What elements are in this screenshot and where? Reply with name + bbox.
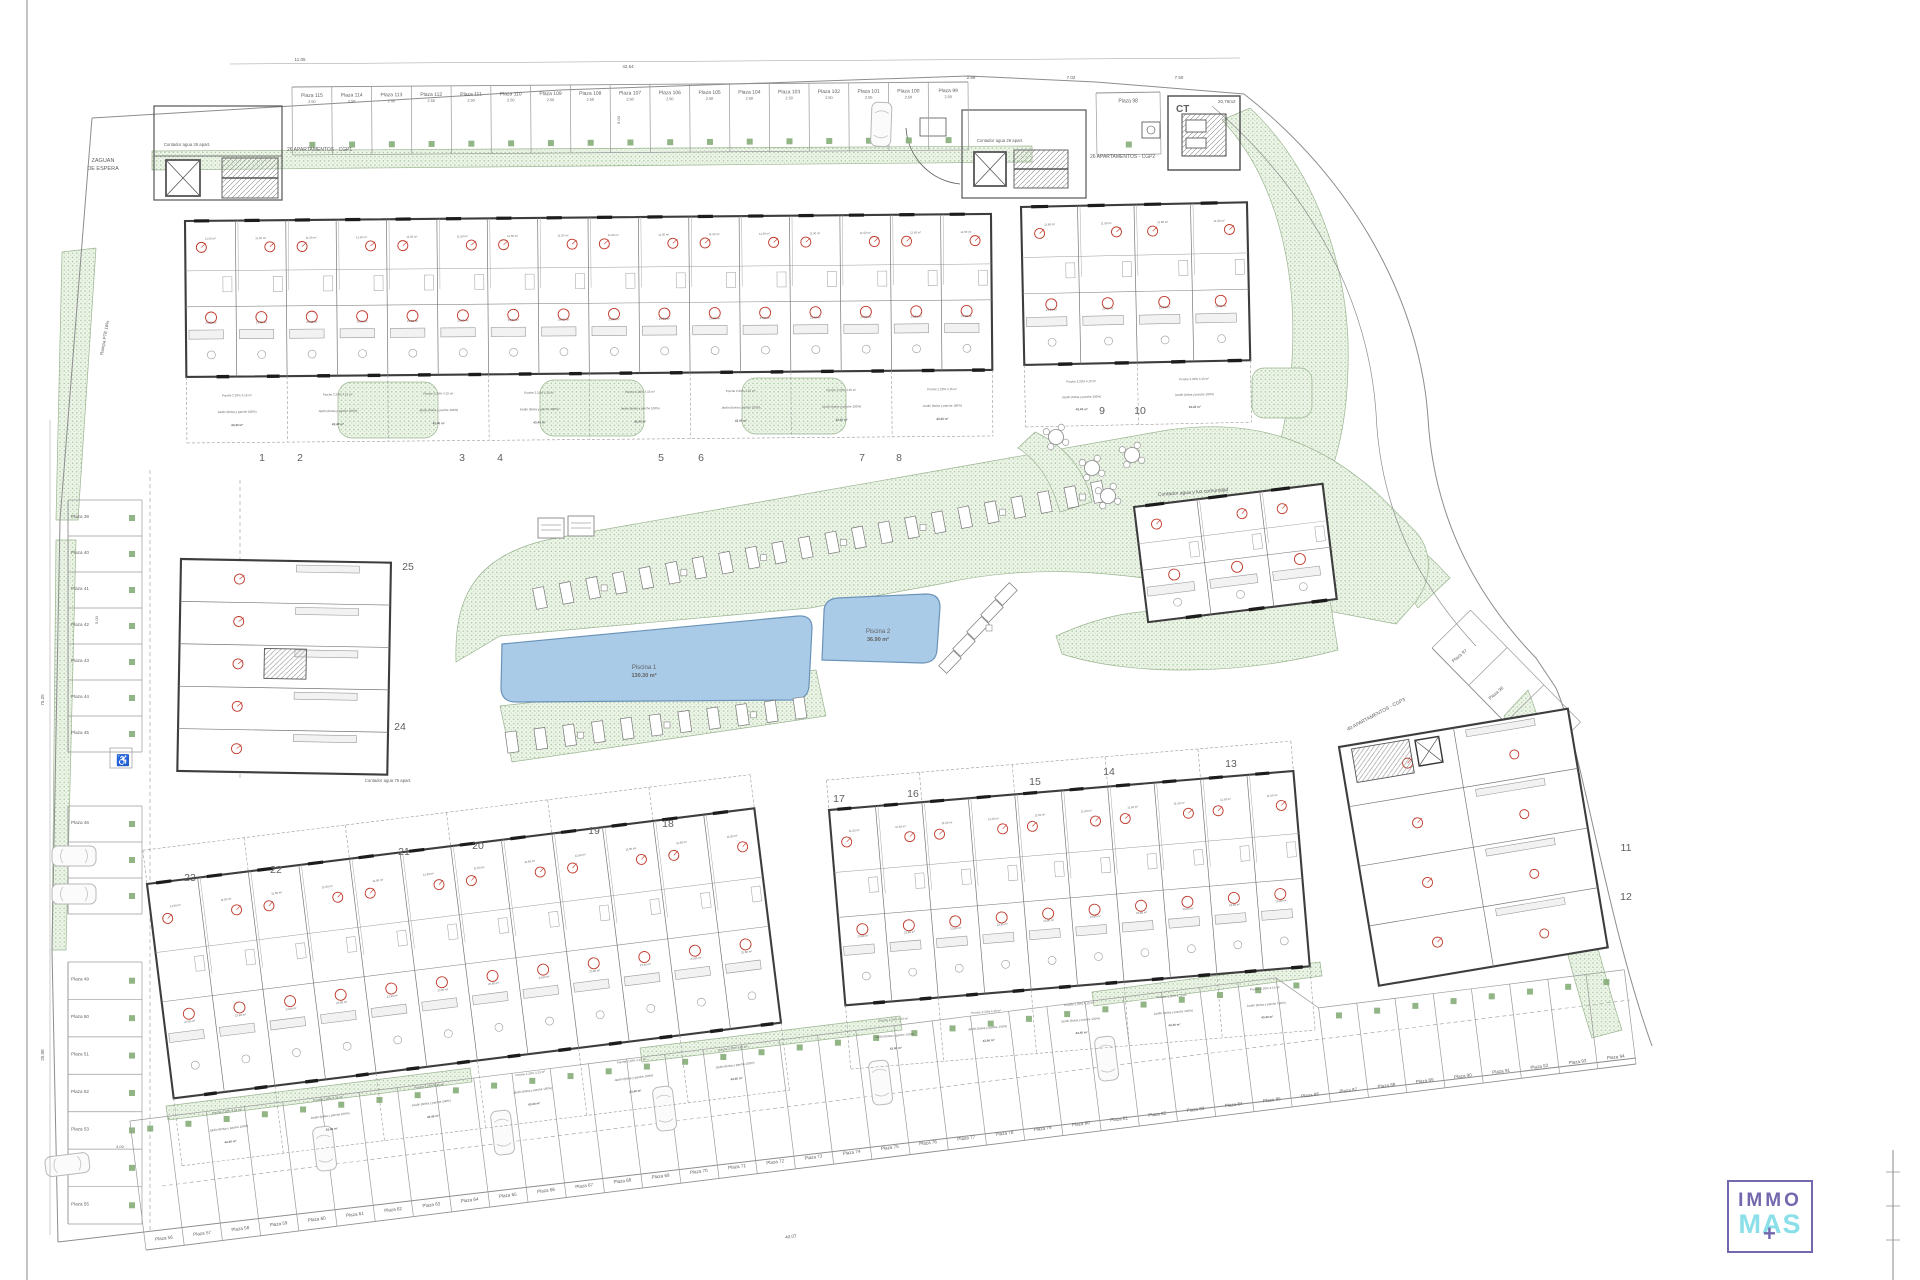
parking-stall-label: Plaza 98 [1118, 98, 1138, 104]
stall-planter-marker [826, 138, 832, 144]
stall-planter-marker [627, 139, 633, 145]
plan-label: 5.00 [94, 615, 99, 624]
parking-stall-label: Plaza 68 [613, 1177, 632, 1184]
stall-planter-marker [567, 1073, 573, 1079]
plan-label: Contador agua 26 apart. [164, 142, 211, 147]
svg-text:43.40 m²: 43.40 m² [427, 1114, 439, 1119]
svg-text:2.50: 2.50 [467, 99, 474, 103]
svg-text:Porche 2.20% 4.15 m²: Porche 2.20% 4.15 m² [1066, 379, 1096, 384]
parking-stall-label: Plaza 61 [346, 1211, 365, 1218]
stall-planter-marker [129, 1127, 135, 1133]
parked-car [652, 1086, 677, 1132]
svg-text:43.40 m²: 43.40 m² [735, 419, 747, 423]
parking-stall-label: Plaza 58 [231, 1225, 250, 1232]
svg-text:Porche 2.20% 4.15 m²: Porche 2.20% 4.15 m² [1064, 1001, 1094, 1007]
ct-transformer-box [1142, 96, 1240, 170]
stall-planter-marker [1217, 992, 1223, 998]
stall-planter-marker [1141, 1002, 1147, 1008]
svg-text:11.50 m²: 11.50 m² [910, 230, 921, 234]
plan-label: CT [1176, 104, 1189, 115]
parking-stall-label: Plaza 101 [858, 89, 880, 95]
plan-label: 25.08 [40, 1049, 45, 1061]
stall-planter-marker [1102, 1006, 1108, 1012]
svg-text:23.80 m²: 23.80 m² [1102, 306, 1113, 310]
svg-text:11.50 m²: 11.50 m² [860, 231, 871, 235]
stall-planter-marker [508, 140, 514, 146]
stall-planter-marker [129, 695, 135, 701]
svg-text:2.50: 2.50 [348, 100, 355, 104]
svg-text:2.50: 2.50 [547, 98, 554, 102]
block-number: 19 [588, 825, 600, 837]
parked-car [52, 884, 96, 904]
svg-text:11.50 m²: 11.50 m² [608, 233, 619, 237]
block-number: 1 [259, 452, 265, 464]
svg-text:Porche 2.20% 4.15 m²: Porche 2.20% 4.15 m² [617, 1057, 647, 1065]
parking-stall-label: Plaza 87 [1339, 1087, 1358, 1094]
block-number: 25 [402, 561, 414, 573]
staircase [264, 648, 307, 679]
svg-text:Jardín (bolsa y parche 100%): Jardín (bolsa y parche 100%) [1061, 1016, 1100, 1023]
parking-stall-label: Plaza 88 [1377, 1082, 1396, 1089]
parking-stall-label: Plaza 43 [71, 658, 89, 663]
svg-text:2.50: 2.50 [944, 95, 951, 99]
stall-planter-marker [1336, 1012, 1342, 1018]
plan-label: 40.07 [785, 1233, 797, 1239]
svg-text:11.50 m²: 11.50 m² [356, 235, 367, 239]
svg-text:Jardín (bolsa y parche 100%): Jardín (bolsa y parche 100%) [1154, 1008, 1193, 1015]
parking-stall-label: Plaza 99 [938, 88, 958, 94]
block-number: 22 [270, 864, 282, 876]
parking-stall-label: Plaza 44 [71, 694, 89, 699]
svg-text:23.80 m²: 23.80 m² [306, 320, 317, 324]
parking-stall-label: Plaza 66 [537, 1187, 556, 1194]
svg-text:23.80 m²: 23.80 m² [1215, 304, 1226, 308]
stall-planter-marker [707, 139, 713, 145]
svg-text:Porche 2.20% 4.15 m²: Porche 2.20% 4.15 m² [1250, 985, 1280, 991]
parking-stall-label: Plaza 45 [71, 730, 89, 735]
parked-car [312, 1126, 337, 1172]
stall-planter-marker [129, 893, 135, 899]
svg-text:Porche 2.20% 4.15 m²: Porche 2.20% 4.15 m² [726, 389, 756, 393]
svg-text:2.50: 2.50 [666, 97, 673, 101]
sunbed-row [939, 583, 1018, 674]
parking-stall-label: Plaza 77 [957, 1134, 976, 1141]
svg-text:11.50 m²: 11.50 m² [1157, 220, 1168, 224]
svg-text:Jardín (bolsa y parche 100%): Jardín (bolsa y parche 100%) [412, 1099, 451, 1108]
stall-planter-marker [1603, 979, 1609, 985]
stall-planter-marker [129, 978, 135, 984]
stall-planter-marker [1179, 997, 1185, 1003]
block-number: 24 [394, 721, 406, 733]
parking-row-top: Plaza 1152.50Plaza 1142.50Plaza 1132.50P… [292, 82, 969, 155]
plan-label: 26 APARTAMENTOS - CGP2 [1090, 154, 1155, 160]
logo-immo-text: IMMO [1729, 1191, 1811, 1210]
parking-stall-label: Plaza 83 [1186, 1106, 1205, 1113]
block-number: 6 [698, 452, 704, 464]
svg-text:23.80 m²: 23.80 m² [1159, 305, 1170, 309]
block-number: 11 [1621, 842, 1632, 854]
plan-label: 36.90 m² [867, 636, 889, 643]
svg-text:23.80 m²: 23.80 m² [256, 320, 267, 324]
parking-stall-label: Plaza 65 [499, 1192, 518, 1199]
parking-stall-label: Plaza 78 [995, 1130, 1014, 1137]
stall-planter-marker [129, 623, 135, 629]
stall-planter-marker [835, 1040, 841, 1046]
stall-planter-marker [453, 1087, 459, 1093]
logo-mas-text: MAS+ [1729, 1211, 1811, 1238]
svg-text:43.40 m²: 43.40 m² [629, 1089, 641, 1094]
svg-text:23.80 m²: 23.80 m² [760, 316, 771, 320]
parking-stall-label: Plaza 85 [1263, 1096, 1282, 1103]
block-number: 3 [459, 452, 465, 464]
parking-stall-label: Plaza 109 [539, 91, 561, 97]
site-plan-canvas: Plaza 1152.50Plaza 1142.50Plaza 1132.50P… [0, 0, 1920, 1280]
svg-text:2.50: 2.50 [865, 96, 872, 100]
block-number: 14 [1103, 766, 1115, 778]
stall-planter-marker [129, 1090, 135, 1096]
plan-label: 26 APARTAMENTOS - CGP1 [287, 147, 352, 153]
stall-planter-marker [185, 1121, 191, 1127]
svg-text:11.50 m²: 11.50 m² [960, 230, 971, 234]
plan-label: 130.30 m² [631, 672, 656, 679]
parking-stall-label: Plaza 107 [619, 90, 641, 96]
parking-stall-label: Plaza 67 [575, 1182, 594, 1189]
svg-text:43.40 m²: 43.40 m² [890, 1046, 902, 1051]
svg-text:23.80 m²: 23.80 m² [407, 319, 418, 323]
svg-text:Jardín (bolsa y parche 100%): Jardín (bolsa y parche 100%) [614, 1073, 653, 1082]
svg-text:Jardín (bolsa y parche 100%): Jardín (bolsa y parche 100%) [822, 404, 861, 408]
svg-text:11.50 m²: 11.50 m² [406, 235, 417, 239]
parking-stall-label: Plaza 55 [71, 1201, 89, 1206]
plan-label: ZAGUAN [92, 158, 115, 164]
stall-planter-marker [129, 857, 135, 863]
block-number: 4 [497, 452, 503, 464]
svg-text:Porche 2.20% 4.15 m²: Porche 2.20% 4.15 m² [515, 1070, 545, 1078]
parked-car [52, 846, 96, 866]
parking-stall-label: Plaza 86 [1301, 1091, 1320, 1098]
parking-stall-label: Plaza 70 [690, 1168, 709, 1175]
svg-text:11.50 m²: 11.50 m² [457, 234, 468, 238]
stall-planter-marker [429, 141, 435, 147]
parking-stall-label: Plaza 60 [308, 1215, 327, 1222]
building-b: 11.50 m²23.80 m²11.50 m²23.80 m²11.50 m²… [1021, 201, 1252, 427]
building-community [1134, 482, 1337, 624]
site-plan-drawing: Plaza 1152.50Plaza 1142.50Plaza 1132.50P… [0, 0, 1920, 1280]
parking-stall-label: Plaza 74 [842, 1149, 861, 1156]
building-g [1339, 709, 1608, 986]
svg-text:43.40 m²: 43.40 m² [1189, 405, 1201, 409]
svg-text:Jardín (bolsa y parche 100%): Jardín (bolsa y parche 100%) [209, 1124, 248, 1133]
parking-stall-label: Plaza 69 [651, 1173, 670, 1180]
stall-planter-marker [786, 138, 792, 144]
stall-planter-marker [338, 1102, 344, 1108]
dimension-line [230, 58, 1240, 64]
svg-text:2.50: 2.50 [587, 98, 594, 102]
stall-planter-marker [129, 659, 135, 665]
stall-planter-marker [667, 139, 673, 145]
parking-stall-label: Plaza 84 [1224, 1101, 1243, 1108]
parking-stall-label: Plaza 102 [818, 89, 840, 95]
svg-text:43.40 m²: 43.40 m² [528, 1101, 540, 1106]
block-number: 21 [398, 846, 410, 858]
parking-stall-label: Plaza 63 [422, 1201, 441, 1208]
svg-text:Jardín (bolsa y parche 100%): Jardín (bolsa y parche 100%) [419, 408, 458, 412]
stall-planter-marker [797, 1044, 803, 1050]
outdoor-shower-boxes [538, 516, 594, 538]
stall-planter-marker [1565, 984, 1571, 990]
parking-stall-label: Plaza 106 [659, 90, 681, 96]
plan-label: 75.25 [40, 694, 45, 706]
svg-text:Jardín (bolsa y parche 100%): Jardín (bolsa y parche 100%) [875, 1032, 914, 1039]
svg-text:2.50: 2.50 [905, 95, 912, 99]
svg-text:2.50: 2.50 [626, 97, 633, 101]
svg-text:43.40 m²: 43.40 m² [1168, 1022, 1180, 1027]
stall-planter-marker [1527, 989, 1533, 995]
svg-text:23.80 m²: 23.80 m² [860, 315, 871, 319]
logo-plus-icon: + [1763, 1223, 1777, 1245]
svg-text:23.80 m²: 23.80 m² [659, 317, 670, 321]
svg-text:11.50 m²: 11.50 m² [1101, 221, 1112, 225]
parking-stall-label: Plaza 51 [71, 1052, 89, 1057]
svg-text:11.50 m²: 11.50 m² [558, 233, 569, 237]
stall-planter-marker [129, 1053, 135, 1059]
parking-stall-label: Plaza 72 [766, 1158, 785, 1165]
stall-planter-marker [1026, 1016, 1032, 1022]
stall-planter-marker [262, 1111, 268, 1117]
svg-text:11.50 m²: 11.50 m² [809, 231, 820, 235]
svg-text:Jardín (bolsa y parche 100%): Jardín (bolsa y parche 100%) [620, 406, 659, 410]
building-e: 11.50 m²23.80 m²11.50 m²23.80 m²11.50 m²… [143, 775, 790, 1166]
svg-text:11.50 m²: 11.50 m² [658, 232, 669, 236]
parking-stall-label: Plaza 97 [1451, 648, 1468, 664]
svg-text:43.40 m²: 43.40 m² [533, 420, 545, 424]
stall-planter-marker [946, 137, 952, 143]
svg-text:11.50 m²: 11.50 m² [759, 232, 770, 236]
svg-text:Porche 2.20% 4.15 m²: Porche 2.20% 4.15 m² [323, 392, 353, 396]
svg-text:Jardín (bolsa y parche 100%): Jardín (bolsa y parche 100%) [217, 410, 256, 414]
plan-label: 11.05 [295, 57, 306, 62]
logo-immomas: IMMO MAS+ [1727, 1180, 1813, 1253]
svg-text:11.50 m²: 11.50 m² [1214, 219, 1225, 223]
stall-planter-marker [747, 139, 753, 145]
parking-stall-label: Plaza 52 [71, 1089, 89, 1094]
parking-stall-label: Plaza 42 [71, 622, 89, 627]
stall-planter-marker [1451, 998, 1457, 1004]
parking-stall-label: Plaza 41 [71, 586, 89, 591]
svg-text:Jardín (bolsa y parche 100%): Jardín (bolsa y parche 100%) [318, 409, 357, 413]
plan-label: 20,76m2 [1218, 99, 1236, 104]
parking-stall-label: Plaza 46 [71, 820, 89, 825]
parking-col-left-a: Plaza 39Plaza 40Plaza 41Plaza 42Plaza 43… [68, 500, 142, 752]
parking-stall-label: Plaza 57 [193, 1230, 212, 1237]
svg-text:43.40 m²: 43.40 m² [231, 423, 243, 427]
plan-label: 7.50 [1175, 75, 1184, 80]
svg-text:43.40 m²: 43.40 m² [836, 418, 848, 422]
parking-stall-label: Plaza 82 [1148, 1111, 1167, 1118]
block-number: 12 [1620, 891, 1632, 903]
stall-planter-marker [468, 141, 474, 147]
svg-text:Jardín (bolsa y parche 100%): Jardín (bolsa y parche 100%) [923, 404, 962, 408]
parking-stall-label: Plaza 50 [71, 1014, 89, 1019]
plan-label: 7.02 [1067, 75, 1076, 80]
svg-text:43.40 m²: 43.40 m² [936, 417, 948, 421]
parking-stall-label: Plaza 62 [384, 1206, 403, 1213]
plan-label: Piscina 1 [632, 665, 657, 671]
svg-text:Porche 2.20% 4.15 m²: Porche 2.20% 4.15 m² [1179, 377, 1209, 382]
stall-planter-marker [224, 1116, 230, 1122]
svg-text:Jardín (bolsa y parche 100%): Jardín (bolsa y parche 100%) [513, 1086, 552, 1095]
svg-text:2.50: 2.50 [706, 97, 713, 101]
parking-stall-label: Plaza 114 [341, 92, 363, 98]
svg-text:11.50 m²: 11.50 m² [709, 232, 720, 236]
stall-planter-marker [129, 1202, 135, 1208]
stall-planter-marker [606, 1068, 612, 1074]
stall-planter-marker [720, 1054, 726, 1060]
svg-text:11.50 m²: 11.50 m² [205, 236, 216, 240]
svg-text:23.80 m²: 23.80 m² [206, 321, 217, 325]
svg-text:43.40 m²: 43.40 m² [1075, 1030, 1087, 1035]
block-number: 10 [1134, 405, 1146, 417]
svg-text:Porche 2.20% 4.15 m²: Porche 2.20% 4.15 m² [222, 393, 252, 397]
parking-stall-label: Plaza 108 [579, 91, 601, 97]
parking-stall-label: Plaza 115 [301, 93, 323, 99]
accessible-parking-icon: ♿ [116, 754, 130, 767]
stall-planter-marker [759, 1049, 765, 1055]
parking-stall-label: Plaza 100 [897, 88, 919, 94]
stall-planter-marker [1126, 141, 1132, 147]
parked-car [44, 1152, 90, 1177]
parking-stall-label: Plaza 110 [500, 91, 522, 97]
svg-text:2.50: 2.50 [746, 97, 753, 101]
parking-stall-label: Plaza 49 [71, 977, 89, 982]
stall-planter-marker [1412, 1003, 1418, 1009]
svg-text:11.50 m²: 11.50 m² [255, 236, 266, 240]
block-number: 18 [662, 818, 674, 830]
svg-text:23.80 m²: 23.80 m² [558, 318, 569, 322]
svg-text:11.50 m²: 11.50 m² [507, 234, 518, 238]
stall-planter-marker [129, 515, 135, 521]
stall-planter-marker [588, 140, 594, 146]
svg-text:Jardín (bolsa y parche 100%): Jardín (bolsa y parche 100%) [968, 1024, 1007, 1031]
svg-text:43.40 m²: 43.40 m² [1076, 407, 1088, 411]
plan-label: 4.00 [116, 1144, 125, 1149]
parking-stall-label: Plaza 89 [1416, 1077, 1435, 1084]
parking-stall-label: Plaza 79 [1033, 1125, 1052, 1132]
svg-text:2.50: 2.50 [507, 98, 514, 102]
svg-text:23.80 m²: 23.80 m² [508, 318, 519, 322]
plan-label: 5.00 [616, 115, 621, 124]
parking-stall-98: Plaza 98 [1096, 92, 1161, 155]
stall-planter-marker [1374, 1008, 1380, 1014]
green-strip-top [152, 146, 1032, 170]
stall-planter-marker [1064, 1011, 1070, 1017]
svg-text:Jardín (bolsa y parche 100%): Jardín (bolsa y parche 100%) [715, 1061, 754, 1070]
parking-col-left-c: Plaza 49Plaza 50Plaza 51Plaza 52Plaza 53… [68, 962, 142, 1224]
building-c [177, 559, 391, 775]
block-number: 5 [658, 452, 664, 464]
svg-text:23.80 m²: 23.80 m² [810, 315, 821, 319]
plan-label: 40 APARTAMENTOS - CGP3 [1346, 697, 1407, 733]
block-number: 20 [472, 840, 484, 852]
parking-stall-label: Plaza 113 [381, 92, 403, 98]
block-number: 8 [896, 452, 902, 464]
parking-stall-label: Plaza 81 [1110, 1115, 1129, 1122]
plan-label: DE ESPERA [87, 166, 119, 172]
block-number: 13 [1225, 758, 1237, 770]
svg-text:Porche 2.20% 4.15 m²: Porche 2.20% 4.15 m² [524, 391, 554, 395]
svg-text:Porche 2.20% 4.15 m²: Porche 2.20% 4.15 m² [927, 387, 957, 391]
stall-planter-marker [129, 551, 135, 557]
parking-stall-label: Plaza 80 [1072, 1120, 1091, 1127]
svg-text:43.40 m²: 43.40 m² [433, 421, 445, 425]
stall-planter-marker [529, 1078, 535, 1084]
parking-stall-label: Plaza 59 [269, 1220, 288, 1227]
svg-text:23.80 m²: 23.80 m² [609, 317, 620, 321]
block-number: 16 [907, 788, 919, 800]
stall-planter-marker [548, 140, 554, 146]
svg-text:2.50: 2.50 [388, 99, 395, 103]
parking-stall-label: Plaza 104 [738, 90, 760, 96]
svg-text:2.50: 2.50 [308, 100, 315, 104]
svg-text:11.50 m²: 11.50 m² [306, 236, 317, 240]
svg-text:43.40 m²: 43.40 m² [224, 1139, 236, 1144]
svg-text:Porche 2.20% 4.15 m²: Porche 2.20% 4.15 m² [423, 391, 453, 395]
parking-stall-label: Plaza 103 [778, 89, 800, 95]
parking-stall-label: Plaza 40 [71, 550, 89, 555]
svg-text:23.80 m²: 23.80 m² [911, 315, 922, 319]
svg-text:2.50: 2.50 [428, 99, 435, 103]
svg-text:23.80 m²: 23.80 m² [961, 314, 972, 318]
parking-stall-label: Plaza 73 [804, 1153, 823, 1160]
parked-car [870, 102, 892, 147]
plan-label: Rampa PTE 16% [99, 320, 110, 355]
stall-planter-marker [415, 1092, 421, 1098]
block-number: 9 [1099, 405, 1105, 417]
stall-planter-marker [129, 587, 135, 593]
stall-planter-marker [1489, 993, 1495, 999]
parked-car [868, 1060, 893, 1106]
svg-text:23.80 m²: 23.80 m² [457, 318, 468, 322]
svg-text:43.40 m²: 43.40 m² [332, 422, 344, 426]
block-number: 23 [184, 872, 196, 884]
plan-label: Piscina 2 [866, 629, 891, 635]
parking-stall-label: Plaza 71 [728, 1163, 747, 1170]
parking-stall-label: Plaza 56 [155, 1235, 174, 1242]
stall-planter-marker [300, 1106, 306, 1112]
parking-stall-label: Plaza 53 [71, 1126, 89, 1131]
parking-stall-label: Plaza 111 [460, 92, 482, 98]
block-number: 7 [859, 452, 865, 464]
svg-text:Jardín (bolsa y parche 100%): Jardín (bolsa y parche 100%) [1175, 392, 1214, 397]
parking-stall-label: Plaza 64 [460, 1196, 479, 1203]
svg-text:Jardín (bolsa y parche 100%): Jardín (bolsa y parche 100%) [520, 407, 559, 411]
stall-planter-marker [129, 731, 135, 737]
plan-label: 42.54 [622, 64, 634, 69]
stall-planter-marker [906, 137, 912, 143]
plan-label: Contador agua 26 apart. [977, 138, 1024, 143]
stall-planter-marker [950, 1025, 956, 1031]
parking-stall-label: Plaza 112 [420, 92, 442, 98]
stall-planter-marker [129, 1015, 135, 1021]
plan-label: 2.89 [967, 75, 976, 80]
svg-text:43.40 m²: 43.40 m² [325, 1126, 337, 1131]
svg-text:2.50: 2.50 [785, 96, 792, 100]
svg-text:23.80 m²: 23.80 m² [1046, 308, 1057, 312]
svg-text:43.40 m²: 43.40 m² [634, 419, 646, 423]
svg-text:23.80 m²: 23.80 m² [709, 316, 720, 320]
stall-planter-marker [129, 821, 135, 827]
svg-text:Jardín (bolsa y parche 100%): Jardín (bolsa y parche 100%) [1062, 394, 1101, 399]
